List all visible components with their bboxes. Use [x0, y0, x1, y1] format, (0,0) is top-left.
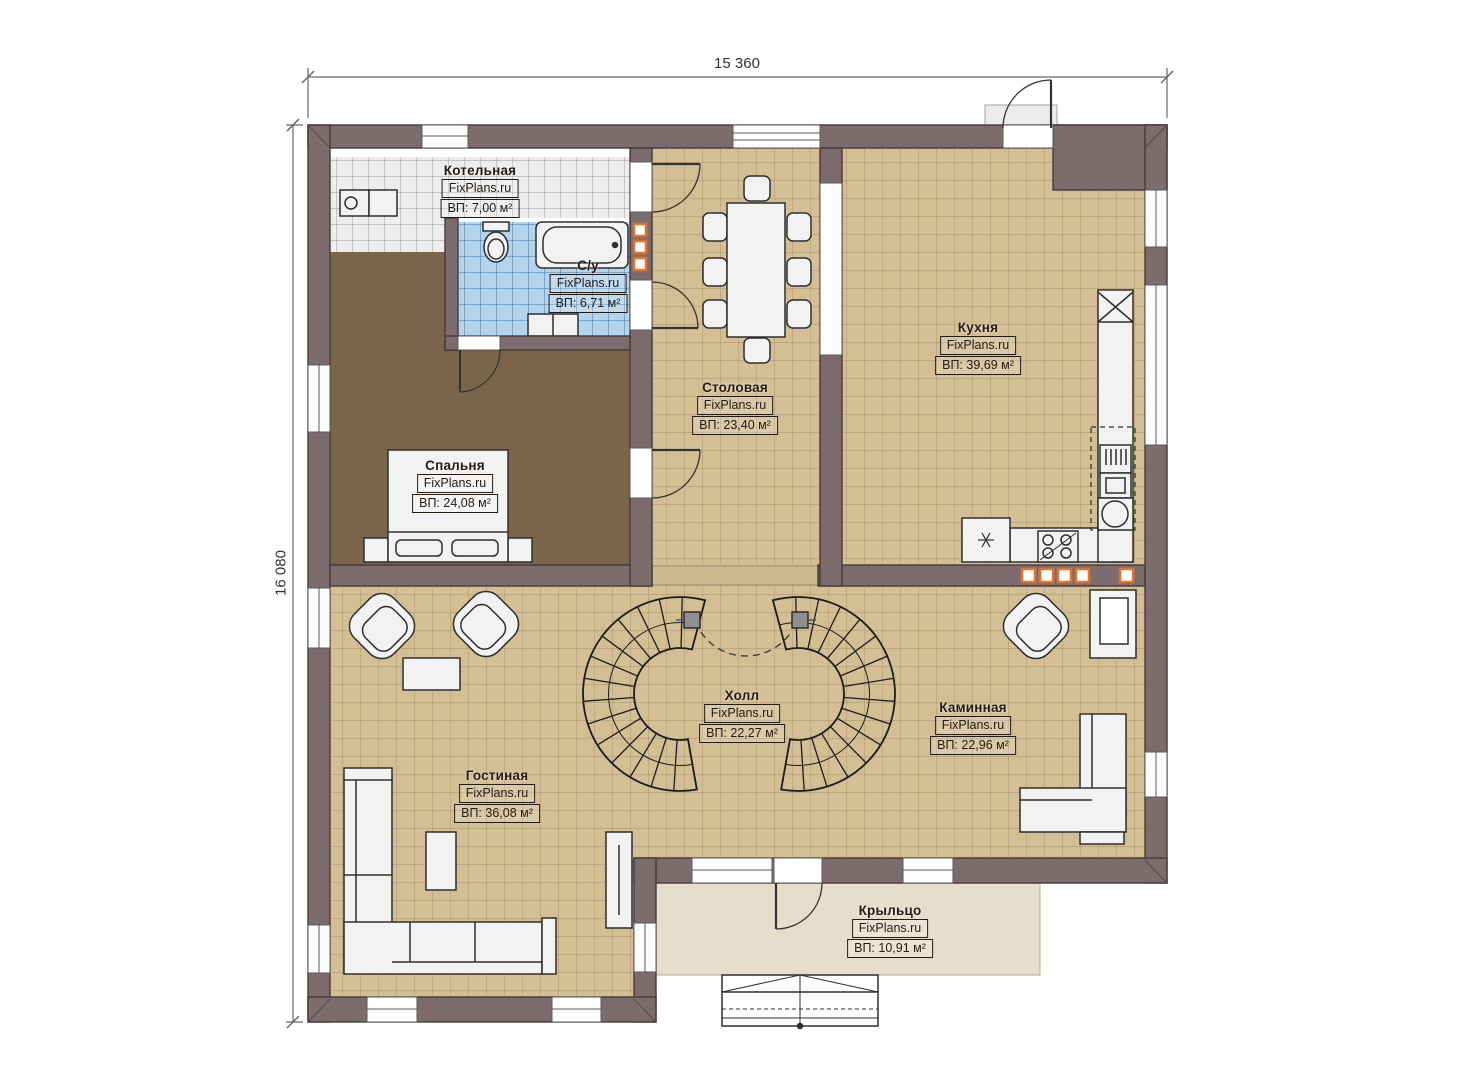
pillow [452, 540, 498, 556]
vent-marker [1022, 569, 1035, 582]
wall-bath-left [445, 218, 458, 350]
dining-chair [703, 258, 727, 286]
dining-chair [703, 213, 727, 241]
window [733, 125, 820, 148]
room-label-dining: Столовая FixPlans.ru ВП: 23,40 м² [692, 380, 778, 435]
tv-stand [426, 832, 456, 890]
vent-marker [1040, 569, 1053, 582]
dining-chair [787, 213, 811, 241]
window [1145, 752, 1167, 797]
nightstand [508, 538, 532, 562]
wall-bedroom-dining [630, 148, 652, 586]
boiler-floor-ext [330, 218, 445, 252]
kitchen-sink [1098, 498, 1133, 530]
newel-post [684, 612, 700, 628]
dining-chair [703, 300, 727, 328]
pillow [396, 540, 442, 556]
window [422, 125, 468, 148]
window [367, 997, 417, 1022]
passage-opening [652, 565, 818, 586]
floor-plan-drawing [0, 0, 1473, 1080]
dining-chair [787, 258, 811, 286]
nightstand [364, 538, 388, 562]
vent-marker [1058, 569, 1071, 582]
wall-divider-left [330, 565, 652, 586]
vanity-sink [528, 314, 578, 336]
vent-marker [1076, 569, 1089, 582]
wall-left [308, 125, 330, 1022]
stove [1038, 531, 1078, 562]
room-label-boiler: Котельная FixPlans.ru ВП: 7,00 м² [441, 163, 520, 218]
room-label-kitchen: Кухня FixPlans.ru ВП: 39,69 м² [935, 320, 1021, 375]
window [308, 365, 330, 432]
vent-marker [634, 224, 646, 236]
dining-chair [744, 338, 770, 363]
fridge [962, 518, 1010, 562]
newel-post [792, 612, 808, 628]
porch-steps [722, 975, 878, 1029]
boiler-appliances [340, 190, 397, 216]
window [692, 858, 772, 883]
dimension-width-label: 15 360 [714, 55, 760, 72]
dimension-height-label: 16 080 [273, 550, 290, 596]
vent-marker [1120, 569, 1133, 582]
room-label-porch: Крыльцо FixPlans.ru ВП: 10,91 м² [847, 903, 933, 958]
room-label-bathroom: С/у FixPlans.ru ВП: 6,71 м² [549, 258, 628, 313]
oven [1100, 473, 1131, 498]
window [308, 925, 330, 973]
window [634, 923, 656, 972]
wall-divider-right [818, 565, 1145, 586]
toilet [483, 222, 509, 262]
fireplace [1090, 590, 1136, 658]
vent-marker [634, 258, 646, 270]
floor-plan-canvas: 15 360 16 080 Котельная FixPlans.ru ВП: … [0, 0, 1473, 1080]
window [308, 588, 330, 648]
room-label-bedroom: Спальня FixPlans.ru ВП: 24,08 м² [412, 458, 498, 513]
dining-chair [787, 300, 811, 328]
wall-bottom-left [308, 997, 656, 1022]
dining-table [727, 203, 785, 337]
entry-landing [985, 105, 1057, 125]
window [903, 858, 953, 883]
coffee-table [403, 658, 460, 690]
window [1145, 190, 1167, 247]
window [1145, 285, 1167, 445]
room-label-living: Гостиная FixPlans.ru ВП: 36,08 м² [454, 768, 540, 823]
room-label-fireplace: Каминная FixPlans.ru ВП: 22,96 м² [930, 700, 1016, 755]
opening-dining-kitchen [820, 183, 842, 355]
vent-marker [634, 241, 646, 253]
dining-chair [744, 176, 770, 201]
room-label-hall: Холл FixPlans.ru ВП: 22,27 м² [699, 688, 785, 743]
window [552, 997, 601, 1022]
dishwasher [1100, 445, 1131, 473]
